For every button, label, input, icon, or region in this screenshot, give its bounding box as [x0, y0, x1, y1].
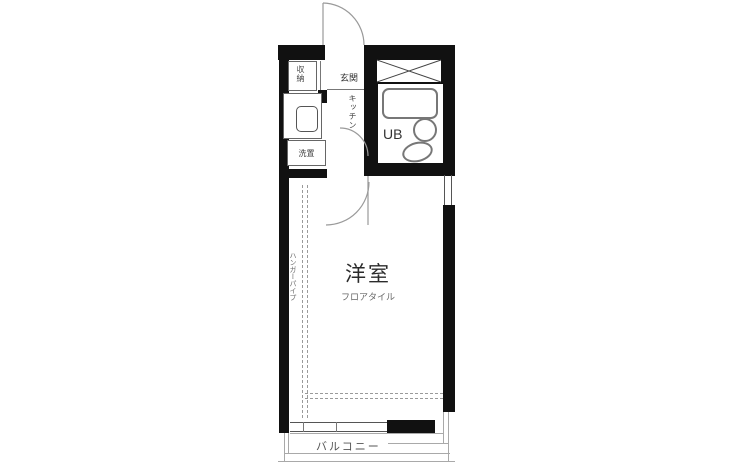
- hall-door: [340, 128, 368, 156]
- floorplan-canvas: 収納 玄関 キッチン 洗置 UB 洋室 フロアタイル ハンガーパイプ バルコニー: [0, 0, 730, 470]
- door-swing-overlay: [0, 0, 730, 470]
- entrance-door: [323, 3, 364, 45]
- room-door: [326, 176, 369, 225]
- shaft-x-icon: [377, 60, 441, 82]
